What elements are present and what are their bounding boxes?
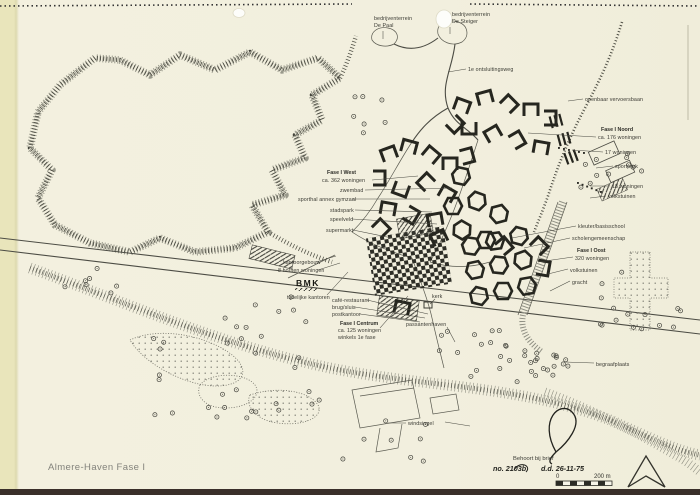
svg-text:ca. 176 woningen: ca. 176 woningen [598, 135, 641, 141]
label-kerk: kerk [432, 294, 443, 300]
label-passantenhaven: passantenhaven [406, 322, 446, 328]
label-sportpark: sportpark [615, 164, 638, 170]
label-bmk: BMK [296, 278, 320, 288]
label-volkstuinen-oost: volkstuinen [570, 268, 598, 274]
punch-hole [233, 9, 245, 18]
label-de-paal: bedrijventerrein [374, 16, 412, 22]
svg-text:ca. 125 woningen: ca. 125 woningen [338, 328, 381, 334]
label-gracht: gracht [572, 280, 588, 286]
scanned-plan-page: bedrijventerrein De Paal bedrijventerrei… [0, 0, 700, 495]
map-canvas: bedrijventerrein De Paal bedrijventerrei… [0, 0, 700, 495]
label-fase-centrum: Fase I Centrum [340, 321, 379, 327]
label-kleuterschool: kleuter/basisschool [578, 224, 625, 230]
bmk-underline [295, 288, 317, 291]
page-title: Almere-Haven Fase I [48, 462, 145, 473]
label-ontsluitingsweg: 1e ontsluitingsweg [468, 67, 513, 73]
scale-zero: 0 [556, 474, 560, 480]
dike-lake-outline [30, 36, 356, 262]
stamp-note: Behoort bij brief [513, 456, 554, 462]
label-volkstuinen-noord: volkstuinen [608, 194, 636, 200]
north-arrow-icon [628, 456, 665, 487]
label-fase-west: Fase I West [327, 170, 356, 176]
label-ov-baan: openbaar vervoersbaan [585, 97, 643, 103]
label-supermarkt: supermarkt [326, 228, 354, 234]
label-windsingel: windsingel [408, 421, 434, 427]
punch-hole [436, 10, 452, 28]
label-zwembad: zwembad [340, 188, 363, 194]
svg-text:320 woningen: 320 woningen [575, 256, 609, 262]
label-de-steiger: bedrijventerrein [452, 12, 490, 18]
leader-lines [316, 27, 613, 426]
label-postkantoor: postkantoor [332, 312, 361, 318]
label-scholengemeenschap: scholengemeenschap [572, 236, 625, 242]
svg-text:ca. 362 woningen: ca. 362 woningen [322, 178, 365, 184]
label-brug-sluis: brug/sluis [332, 305, 356, 311]
label-stadspark: stadspark [330, 208, 354, 214]
label-18-woningen: 18 woningen [612, 184, 643, 190]
stamp-date: d.d. 26-11-75 [541, 464, 585, 473]
label-sporthal: sporthal annex gymzaal [298, 197, 356, 203]
approval-stamp: Behoort bij brief no. 2103b d.d. 26-11-7… [493, 408, 585, 473]
label-fase-oost: Fase I Oost [577, 248, 606, 254]
svg-text:De Paal: De Paal [374, 23, 394, 29]
label-kantoorgebouw: kantoorgebouw [283, 260, 321, 266]
label-17-woningen: 17 woningen [605, 150, 636, 156]
label-fase-noord: Fase I Noord [601, 127, 633, 133]
scale-end: 200 m [594, 474, 611, 480]
label-begraafplaats: begraafplaats [596, 362, 630, 368]
scale-bar: 0 200 m [556, 474, 612, 486]
label-tijdelijke-kantoren: tijdelijke kantoren [287, 295, 330, 301]
stamp-ref: no. 2103b [493, 464, 527, 473]
label-houten-woningen: 8 houten woningen [278, 268, 324, 274]
label-cafe-restaurant: café-restaurant [332, 298, 370, 304]
svg-text:winkels 1e fase: winkels 1e fase [338, 335, 376, 341]
svg-text:De Steiger: De Steiger [452, 19, 478, 25]
label-speelveld: speelveld [330, 217, 353, 223]
